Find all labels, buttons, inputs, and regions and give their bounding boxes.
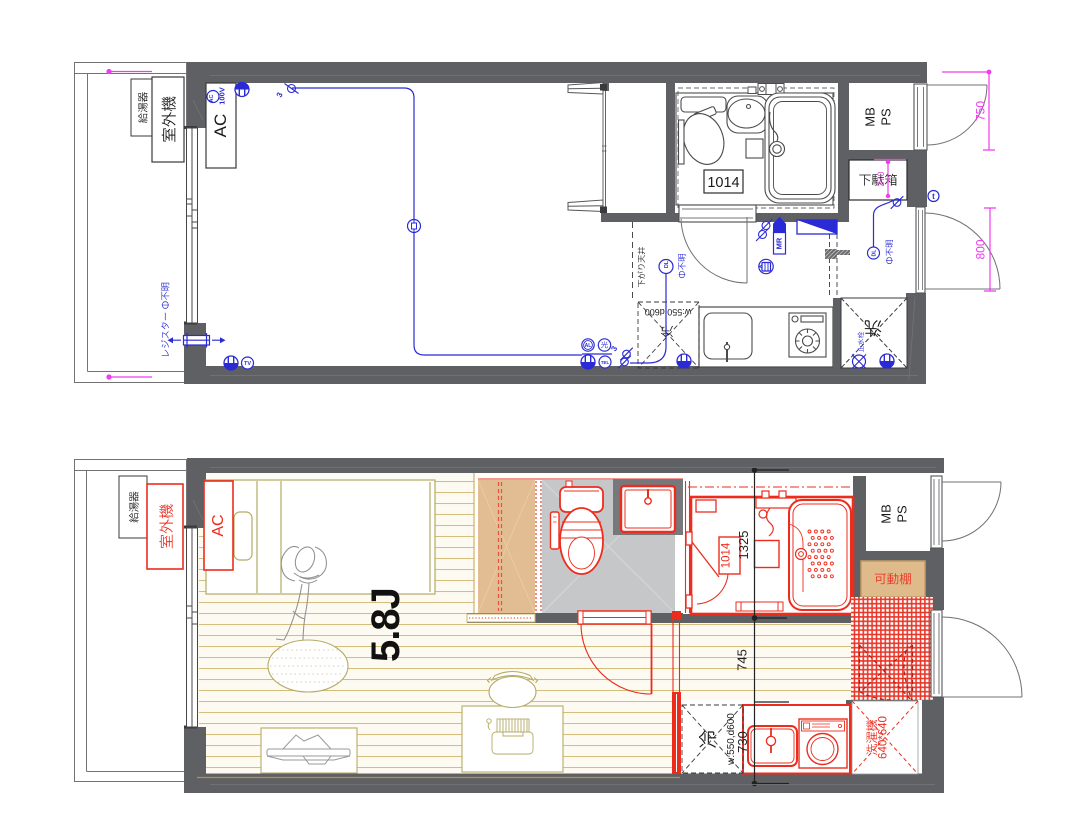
svg-text:640*640: 640*640 xyxy=(878,716,890,759)
svg-text:100V: 100V xyxy=(218,87,227,105)
svg-text:TV: TV xyxy=(244,361,251,367)
svg-text:730: 730 xyxy=(735,731,750,753)
svg-text:PS: PS xyxy=(895,505,910,523)
svg-text:t: t xyxy=(932,192,935,201)
svg-text:5.8J: 5.8J xyxy=(364,588,408,662)
svg-text:DL: DL xyxy=(664,260,670,268)
svg-text:370: 370 xyxy=(876,171,886,186)
svg-text:DL: DL xyxy=(871,249,877,257)
svg-text:1325: 1325 xyxy=(736,531,751,560)
svg-text:800: 800 xyxy=(974,239,988,259)
svg-text:750: 750 xyxy=(974,101,988,121)
svg-text:MB: MB xyxy=(863,107,878,127)
svg-text:AC: AC xyxy=(209,95,215,103)
svg-text:1014: 1014 xyxy=(707,175,739,191)
svg-text:TEL: TEL xyxy=(601,360,610,365)
svg-text:MR: MR xyxy=(775,237,784,249)
svg-text:AL: AL xyxy=(585,343,592,349)
svg-text:1014: 1014 xyxy=(721,542,733,568)
svg-text:AC: AC xyxy=(210,514,227,536)
svg-text:745: 745 xyxy=(735,649,750,671)
svg-text:w:550,d600: w:550,d600 xyxy=(645,307,693,317)
svg-text:MB: MB xyxy=(879,504,894,524)
svg-text:AC: AC xyxy=(211,114,230,138)
svg-text:PS: PS xyxy=(879,108,894,126)
